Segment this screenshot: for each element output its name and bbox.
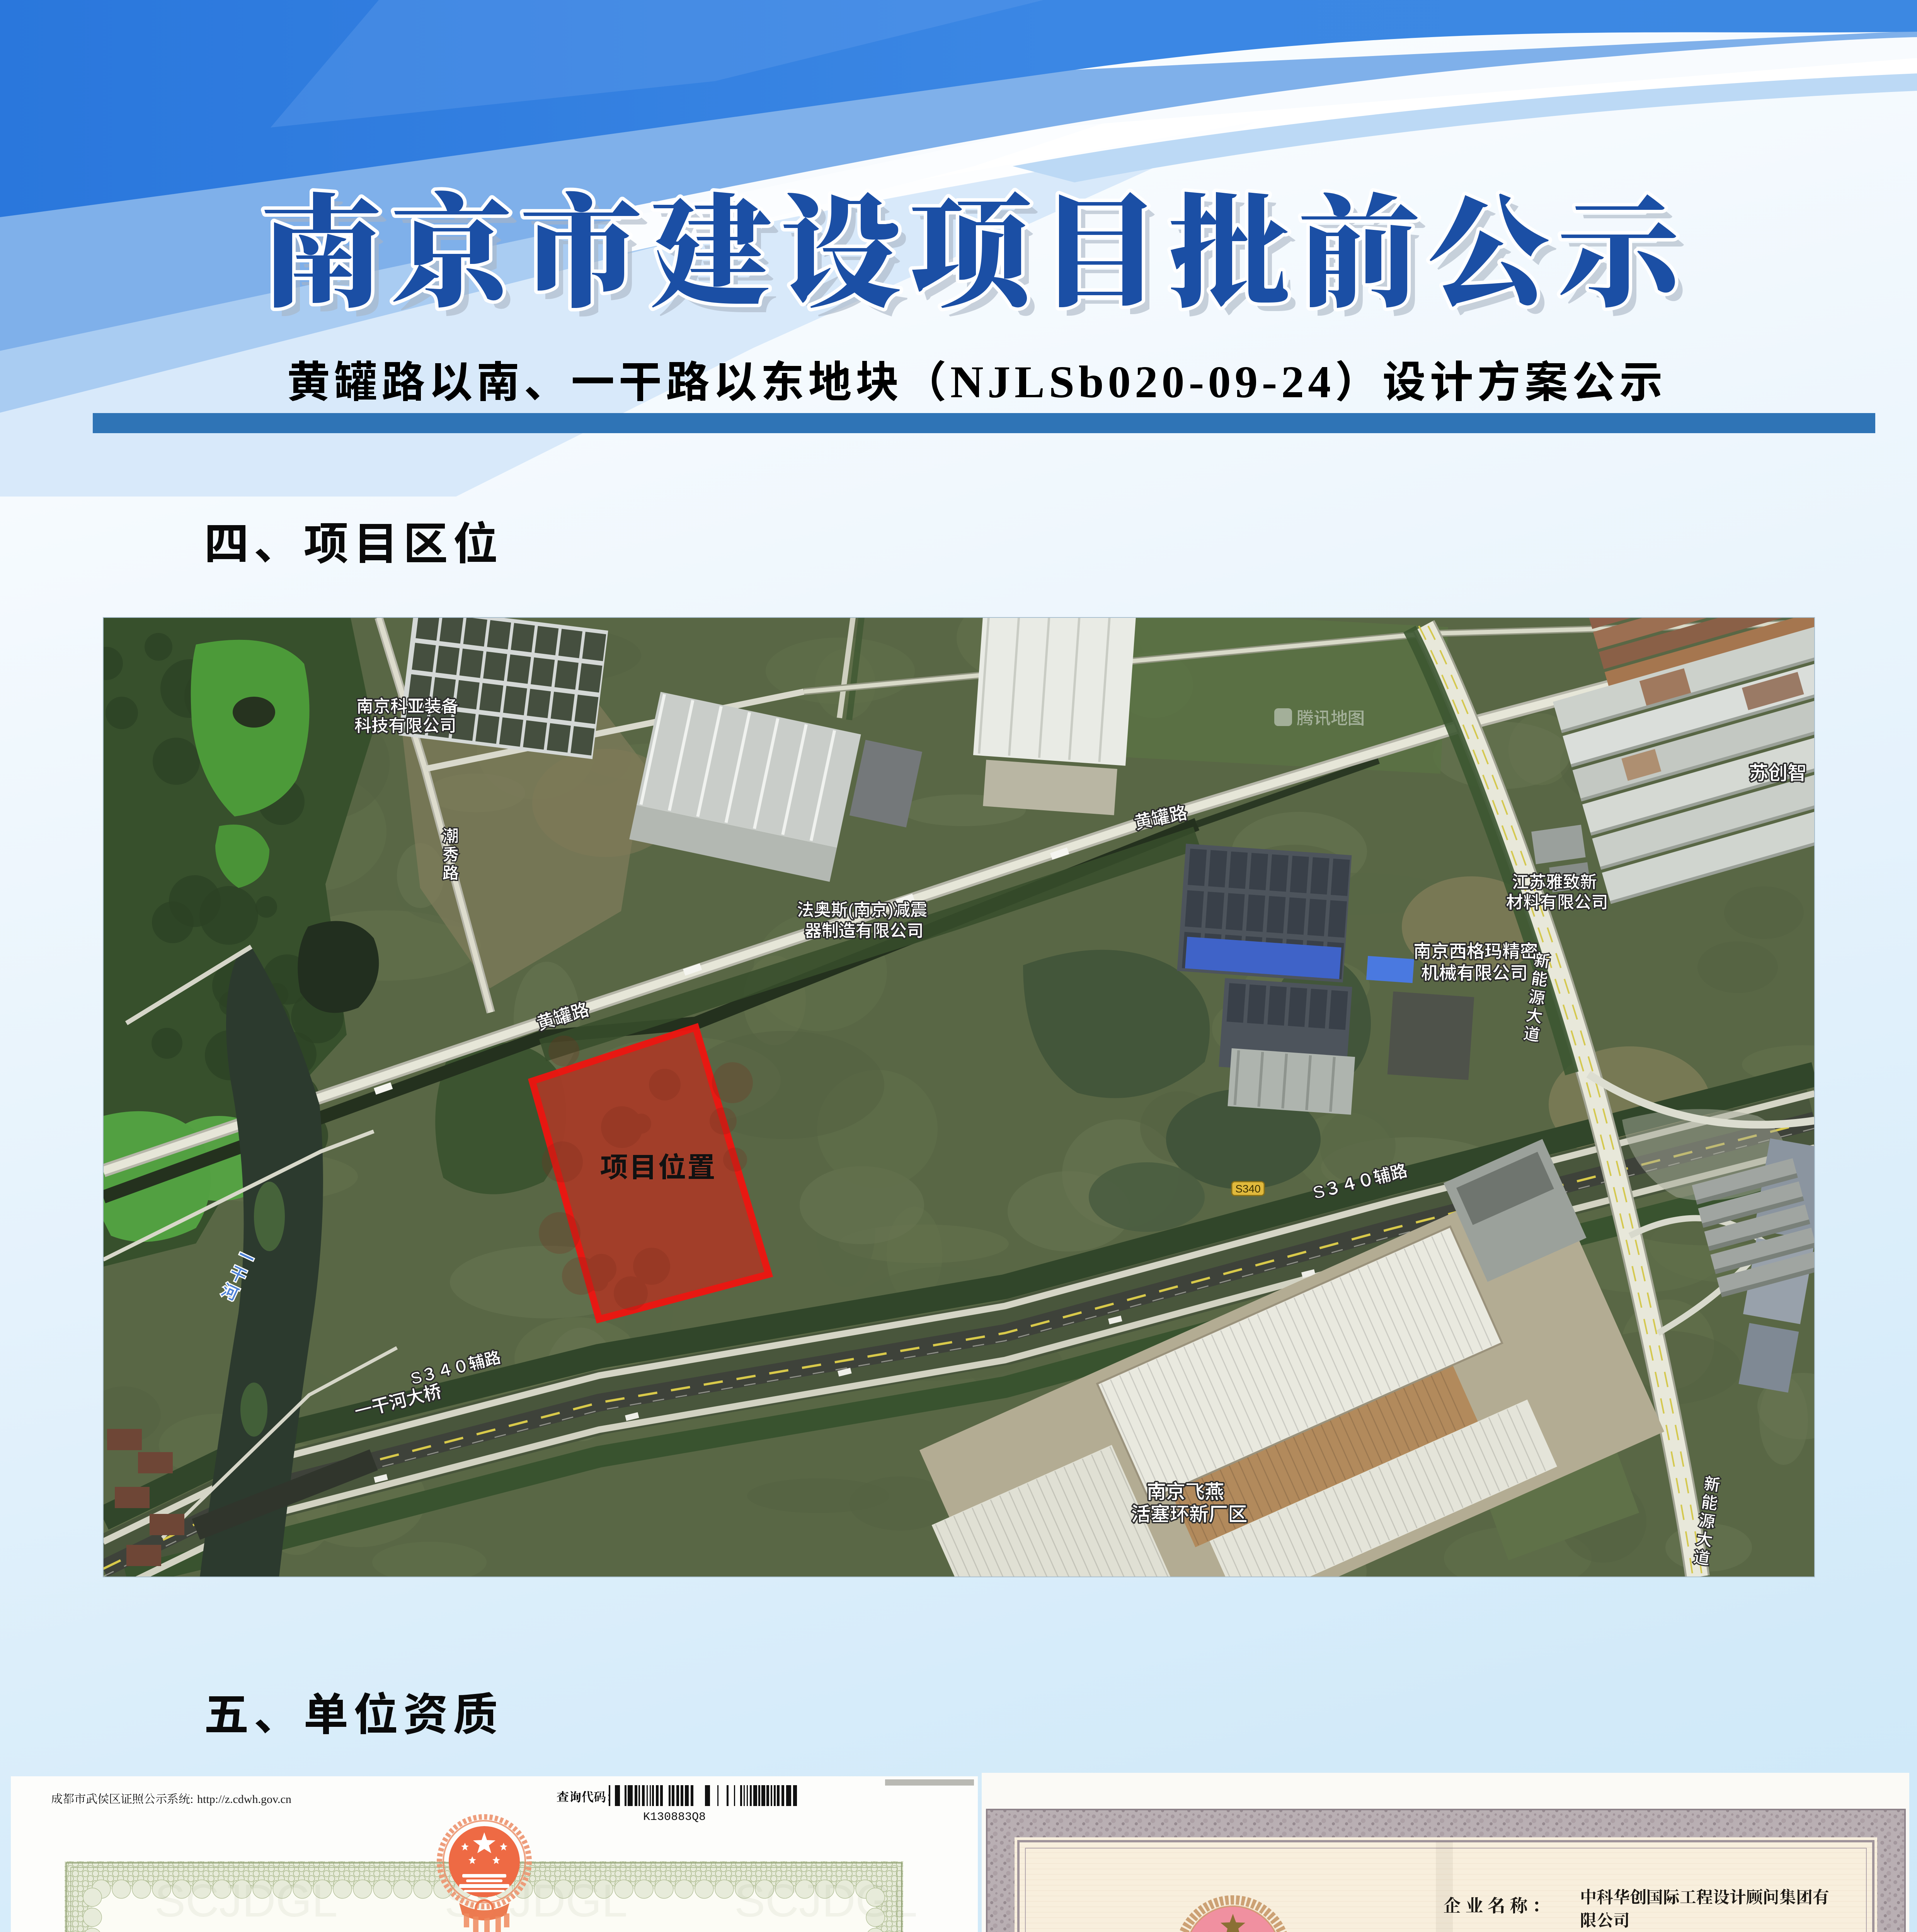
svg-text:SCJDGL: SCJDGL bbox=[734, 1875, 917, 1927]
svg-text:S340: S340 bbox=[1235, 1183, 1260, 1195]
svg-text:http://z.cdwh.gov.cn: http://z.cdwh.gov.cn bbox=[197, 1793, 291, 1806]
svg-text:K130883Q8: K130883Q8 bbox=[643, 1811, 706, 1824]
svg-text:SCJDGL: SCJDGL bbox=[155, 1875, 337, 1927]
